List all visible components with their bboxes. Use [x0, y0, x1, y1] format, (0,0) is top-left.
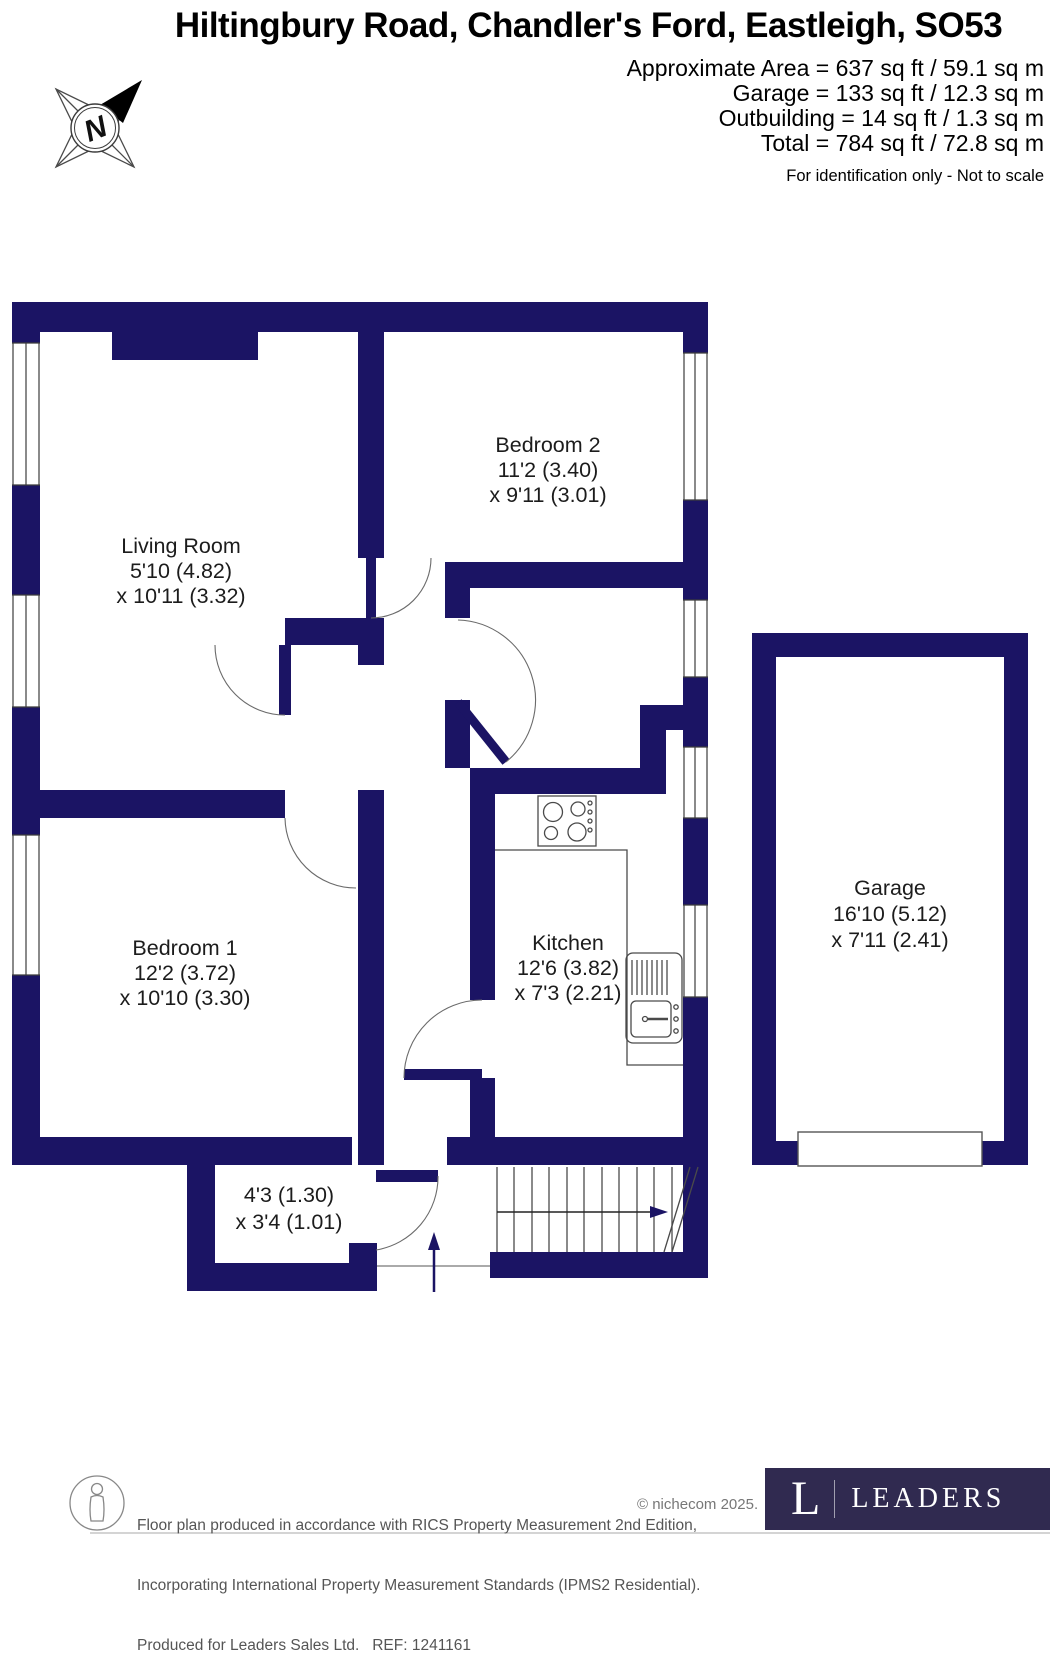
footer-line-1: Floor plan produced in accordance with R…	[137, 1516, 700, 1536]
garage-label: Garage	[854, 876, 926, 900]
window-bedroom1	[12, 835, 40, 975]
bedroom1-dim1: 12'2 (3.72)	[134, 961, 236, 985]
door-living-room	[215, 645, 291, 715]
door-front	[376, 1170, 438, 1250]
window-living-top	[12, 343, 40, 485]
door-bedroom1	[285, 818, 356, 888]
garage-dim1: 16'10 (5.12)	[833, 902, 947, 926]
floorplan-drawing: N	[0, 0, 1057, 1535]
footer-line-3: Produced for Leaders Sales Ltd. REF: 124…	[137, 1636, 700, 1656]
porch-dim2: x 3'4 (1.01)	[236, 1210, 343, 1234]
living-room-dim2: x 10'11 (3.32)	[116, 584, 245, 608]
living-room-label: Living Room	[121, 534, 241, 558]
compass-icon: N	[56, 80, 142, 167]
living-room-dim1: 5'10 (4.82)	[130, 559, 232, 583]
leaders-logo-divider	[834, 1480, 835, 1518]
door-kitchen	[404, 1000, 482, 1080]
leaders-logo-letter: L	[791, 1475, 820, 1523]
kitchen-dim1: 12'6 (3.82)	[517, 956, 619, 980]
room-labels: Living Room 5'10 (4.82) x 10'11 (3.32) B…	[116, 433, 948, 1234]
kitchen-dim2: x 7'3 (2.21)	[515, 981, 622, 1005]
stairs	[497, 1167, 698, 1252]
garage-door	[798, 1132, 982, 1166]
window-living-lower	[12, 595, 40, 707]
window-bedroom2	[683, 353, 708, 500]
bedroom2-dim2: x 9'11 (3.01)	[489, 483, 606, 507]
bedroom2-dim1: 11'2 (3.40)	[498, 458, 599, 482]
leaders-logo: L LEADERS	[765, 1468, 1050, 1530]
bedroom1-dim2: x 10'10 (3.30)	[120, 986, 251, 1010]
footer-disclaimer: Floor plan produced in accordance with R…	[137, 1476, 700, 1676]
bedroom1-label: Bedroom 1	[132, 936, 237, 960]
porch-dim1: 4'3 (1.30)	[244, 1183, 334, 1207]
stairs-direction-arrow	[497, 1206, 668, 1218]
window-small-room	[683, 600, 708, 677]
garage-dim2: x 7'11 (2.41)	[831, 928, 948, 952]
sink-icon	[626, 953, 682, 1043]
window-kitchen-upper	[683, 747, 708, 818]
kitchen-label: Kitchen	[532, 931, 604, 955]
bedroom2-label: Bedroom 2	[495, 433, 600, 457]
house-walls	[12, 302, 708, 1291]
copyright-notice: © nichecom 2025.	[637, 1496, 758, 1513]
leaders-logo-brand: LEADERS	[851, 1483, 1005, 1515]
window-kitchen-lower	[683, 905, 708, 997]
entrance-arrow-icon	[377, 1232, 490, 1292]
footer-line-2: Incorporating International Property Mea…	[137, 1576, 700, 1596]
door-bedroom2	[366, 558, 431, 618]
person-icon	[70, 1476, 124, 1530]
floorplan-page: { "header": { "title": "Hiltingbury Road…	[0, 0, 1057, 1535]
hob-icon	[538, 796, 596, 846]
